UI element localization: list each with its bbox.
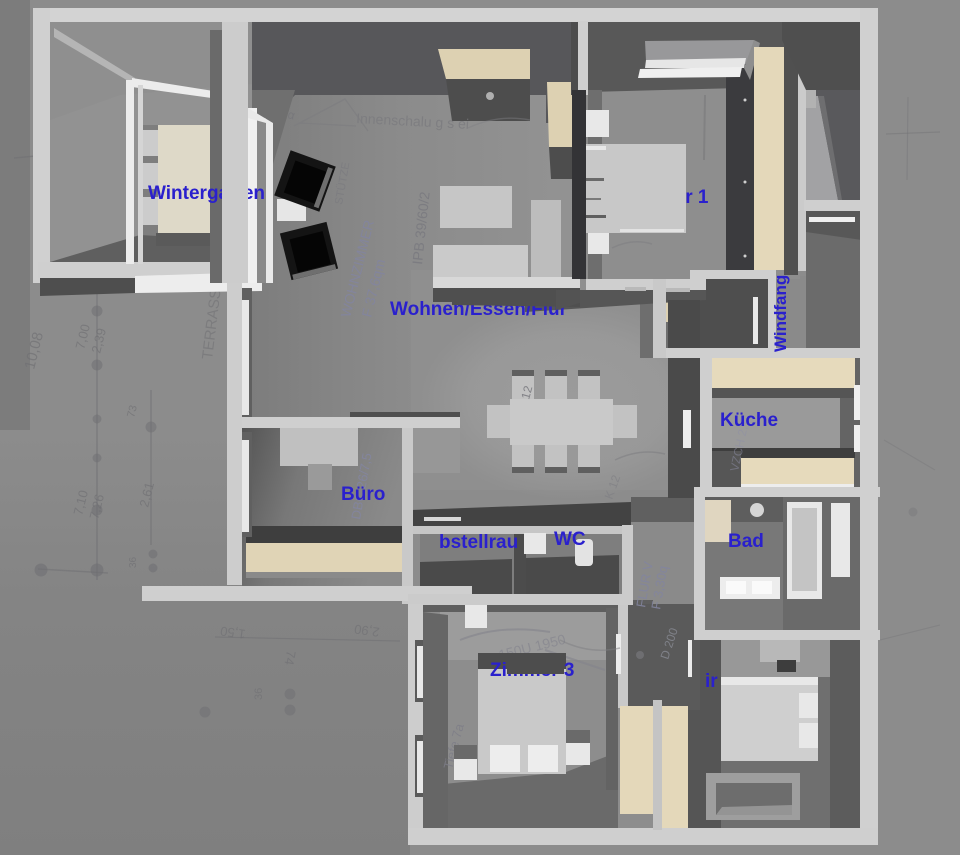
svg-text:36: 36 — [253, 688, 265, 700]
svg-text:WC: WC — [554, 529, 586, 550]
svg-text:bstellrau: bstellrau — [439, 532, 518, 553]
svg-text:Küche: Küche — [720, 410, 778, 431]
svg-text:Bad: Bad — [728, 531, 764, 552]
svg-text:36: 36 — [128, 556, 139, 568]
svg-text:Windfang: Windfang — [771, 275, 790, 352]
svg-text:Büro: Büro — [341, 484, 385, 505]
svg-text:74: 74 — [282, 649, 299, 666]
svg-text:ir: ir — [705, 671, 718, 692]
